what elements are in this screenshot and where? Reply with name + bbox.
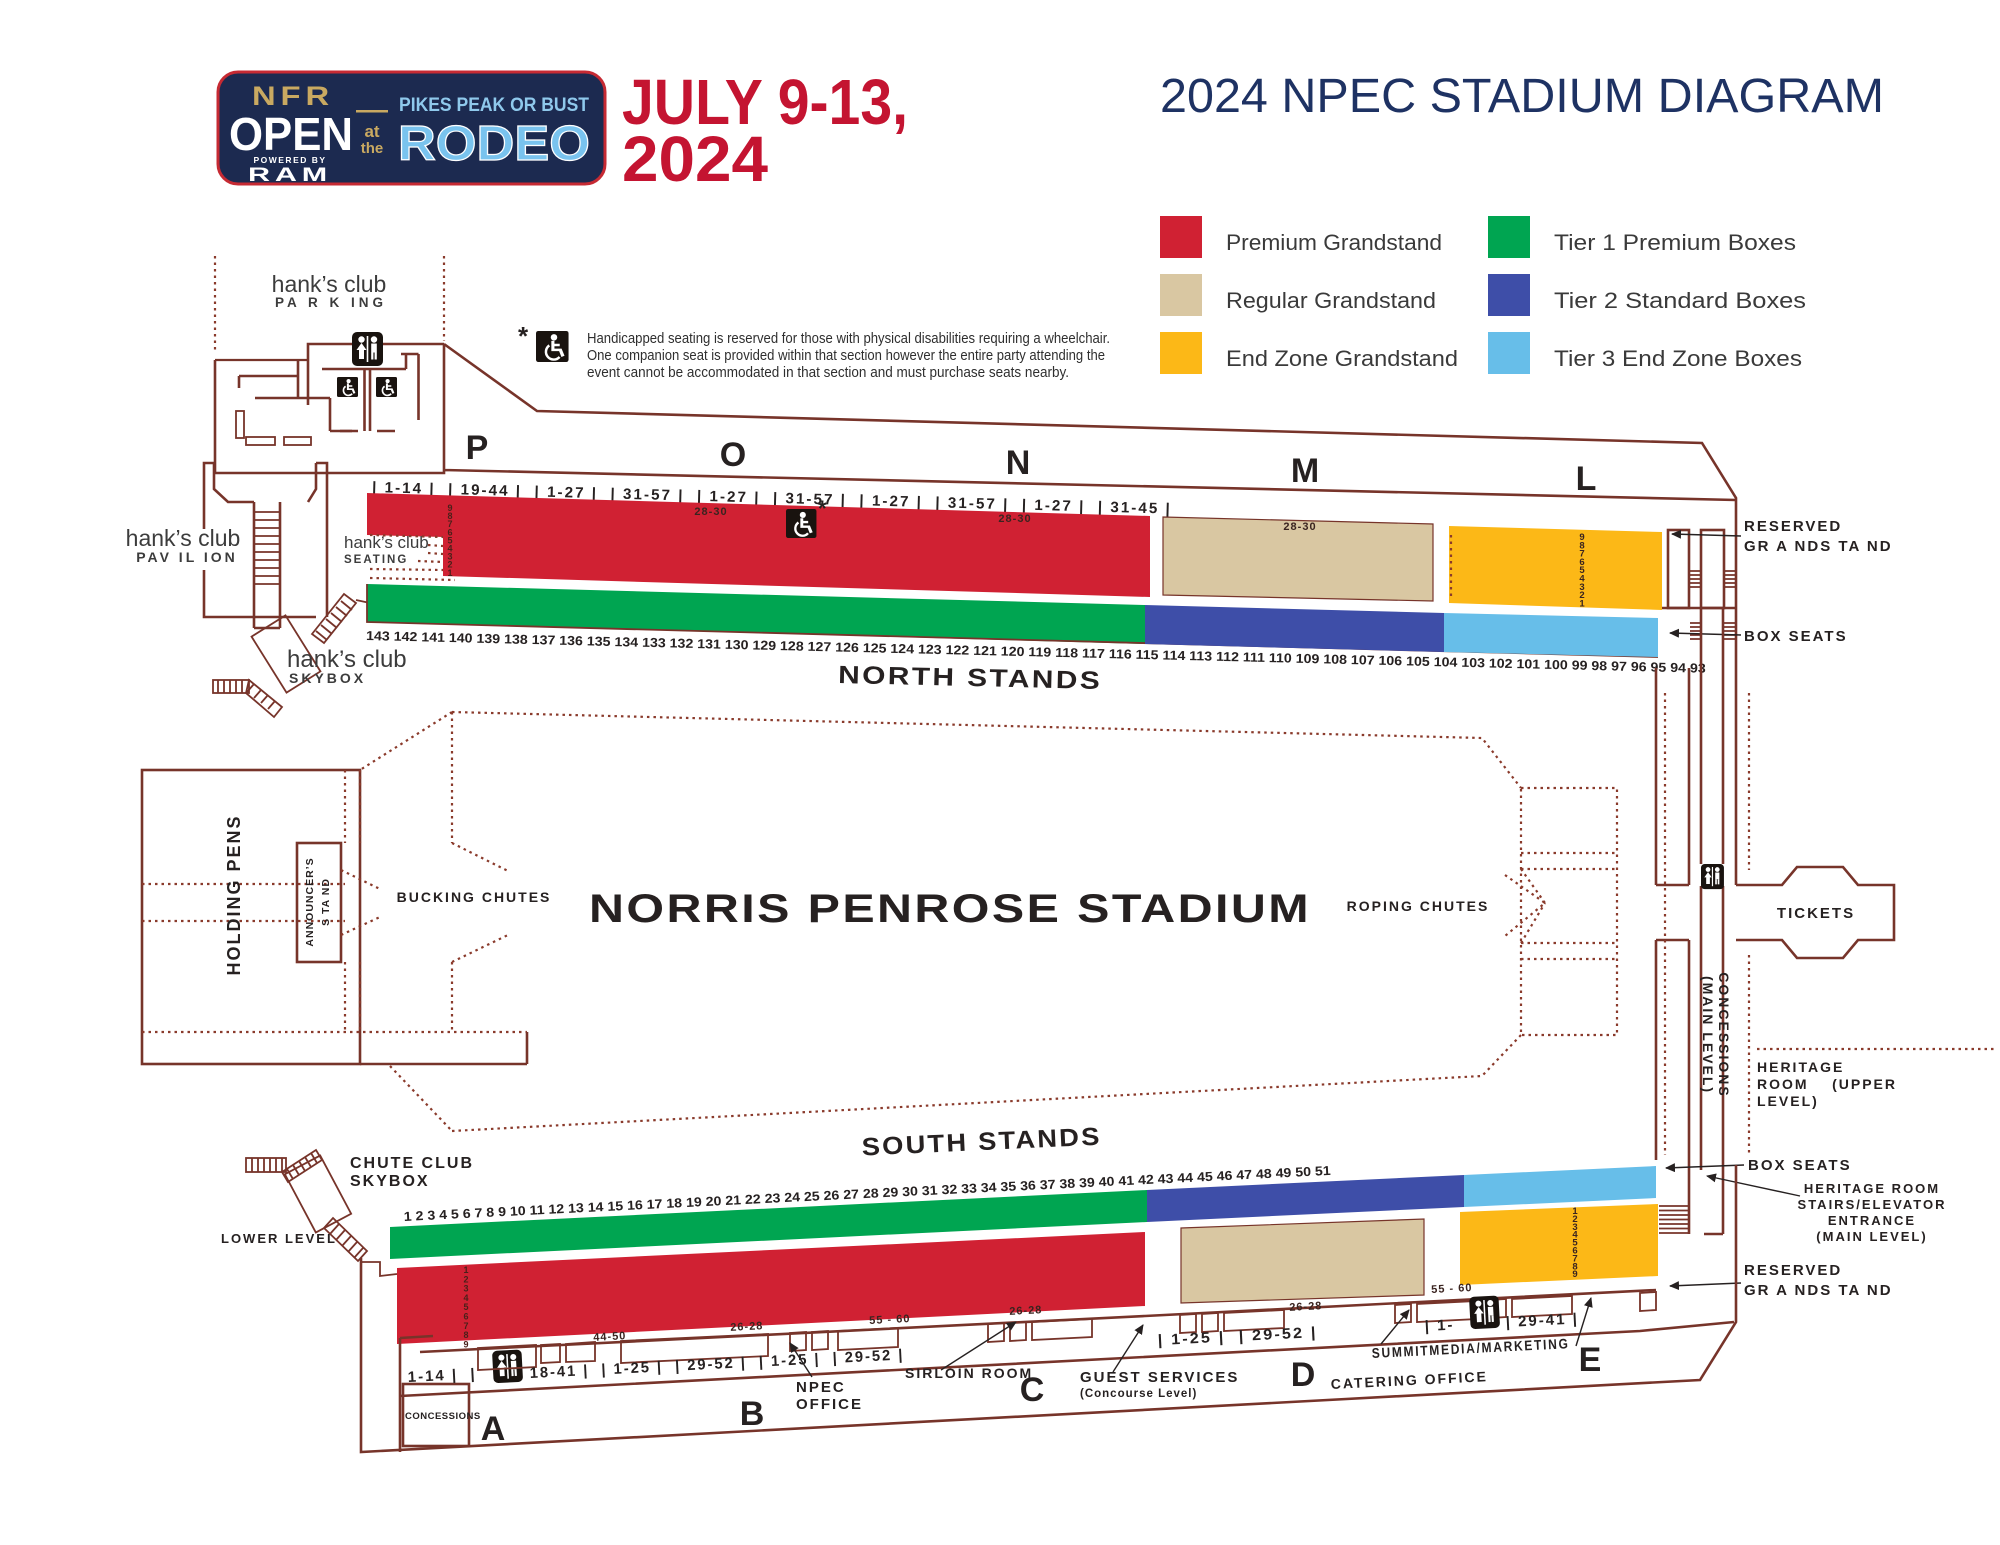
svg-text:O: O [720, 436, 748, 474]
svg-text:NORTH STANDS: NORTH STANDS [838, 661, 1103, 695]
svg-text:PA R K ING: PA R K ING [275, 295, 387, 310]
svg-text:ENTRANCE: ENTRANCE [1828, 1213, 1916, 1228]
svg-text:26-28: 26-28 [1009, 1304, 1043, 1318]
svg-text:ROOM (UPPER: ROOM (UPPER [1757, 1076, 1897, 1092]
svg-text:OFFICE: OFFICE [796, 1396, 863, 1413]
svg-text:CHUTE CLUB: CHUTE CLUB [350, 1155, 474, 1172]
svg-text:LOWER LEVEL: LOWER LEVEL [221, 1231, 337, 1246]
svg-text:BUCKING CHUTES: BUCKING CHUTES [397, 889, 552, 905]
svg-text:HERITAGE: HERITAGE [1757, 1059, 1844, 1075]
svg-text:*: * [518, 321, 529, 351]
svg-text:STAIRS/ELEVATOR: STAIRS/ELEVATOR [1798, 1197, 1947, 1212]
svg-text:NORRIS PENROSE STADIUM: NORRIS PENROSE STADIUM [589, 887, 1311, 931]
svg-text:| 1-: | 1- [1424, 1317, 1455, 1335]
svg-text:HOLDING PENS: HOLDING PENS [224, 814, 244, 975]
svg-text:LEVEL): LEVEL) [1757, 1093, 1819, 1109]
svg-text:GUEST SERVICES: GUEST SERVICES [1080, 1369, 1239, 1386]
svg-text:26-28: 26-28 [1289, 1300, 1323, 1314]
svg-text:Regular Grandstand: Regular Grandstand [1226, 288, 1436, 313]
svg-text:RODEO: RODEO [398, 117, 590, 171]
svg-text:M: M [1291, 452, 1321, 490]
svg-text:28-30: 28-30 [1283, 521, 1316, 533]
svg-text:44-50: 44-50 [593, 1330, 627, 1344]
svg-text:hank’s club: hank’s club [272, 271, 387, 297]
svg-text:S TA ND: S TA ND [320, 878, 332, 926]
svg-text:CONCESSIONS: CONCESSIONS [405, 1411, 481, 1422]
svg-text:Handicapped seating is reserve: Handicapped seating is reserved for thos… [587, 330, 1110, 347]
svg-text:hank’s club: hank’s club [287, 646, 407, 673]
svg-text:GR A NDS TA ND: GR A NDS TA ND [1744, 538, 1893, 555]
svg-text:L: L [1576, 460, 1599, 498]
svg-text:TICKETS: TICKETS [1777, 905, 1855, 922]
svg-text:Tier 2 Standard Boxes: Tier 2 Standard Boxes [1554, 288, 1806, 313]
svg-text:1-14 | |: 1-14 | | [407, 1366, 477, 1386]
svg-text:One companion seat is provided: One companion seat is provided within th… [587, 347, 1105, 364]
svg-text:SEATING: SEATING [344, 554, 408, 566]
svg-text:PAV IL ION: PAV IL ION [136, 549, 238, 565]
svg-text:SKYBOX: SKYBOX [289, 670, 366, 686]
svg-text:E: E [1579, 1341, 1604, 1379]
svg-text:RESERVED: RESERVED [1744, 1262, 1842, 1279]
svg-text:| 29-41 |: | 29-41 | [1505, 1310, 1579, 1331]
svg-text:SIRLOIN ROOM: SIRLOIN ROOM [905, 1365, 1033, 1381]
svg-text:55 - 60: 55 - 60 [869, 1313, 911, 1327]
svg-text:RAM: RAM [248, 165, 332, 186]
svg-text:B: B [740, 1395, 767, 1433]
svg-text:(Concourse Level): (Concourse Level) [1080, 1388, 1197, 1400]
svg-text:GR A NDS TA ND: GR A NDS TA ND [1744, 1282, 1893, 1299]
svg-text:2024: 2024 [622, 123, 768, 195]
svg-text:123456789: 123456789 [463, 1265, 468, 1349]
svg-text:at: at [364, 122, 379, 141]
svg-text:(MAIN LEVEL): (MAIN LEVEL) [1816, 1229, 1927, 1244]
svg-text:Premium Grandstand: Premium Grandstand [1226, 230, 1442, 255]
svg-text:RESERVED: RESERVED [1744, 518, 1842, 535]
svg-text:N: N [1006, 444, 1033, 482]
svg-text:987654321: 987654321 [1579, 532, 1585, 609]
svg-text:P: P [466, 429, 491, 467]
svg-text:A: A [481, 1410, 508, 1448]
svg-text:ROPING CHUTES: ROPING CHUTES [1347, 898, 1490, 914]
svg-text:NFR: NFR [252, 81, 334, 111]
svg-text:CONCESSIONS: CONCESSIONS [1716, 972, 1732, 1097]
svg-text:123456789: 123456789 [1572, 1206, 1578, 1280]
svg-text:the: the [361, 140, 384, 157]
svg-text:POWERED BY: POWERED BY [253, 155, 326, 165]
svg-text:End Zone Grandstand: End Zone Grandstand [1226, 346, 1458, 371]
svg-text:PIKES PEAK OR BUST: PIKES PEAK OR BUST [399, 95, 589, 116]
svg-text:BOX SEATS: BOX SEATS [1748, 1157, 1852, 1174]
svg-text:(MAIN LEVEL): (MAIN LEVEL) [1700, 976, 1716, 1094]
svg-text:26-28: 26-28 [730, 1320, 764, 1334]
svg-text:OPEN: OPEN [229, 108, 353, 160]
svg-text:2024 NPEC STADIUM DIAGRAM: 2024 NPEC STADIUM DIAGRAM [1160, 70, 1884, 123]
svg-text:BOX SEATS: BOX SEATS [1744, 628, 1848, 645]
svg-text:Tier 3 End Zone Boxes: Tier 3 End Zone Boxes [1554, 346, 1802, 371]
svg-text:event cannot be accommodated i: event cannot be accommodated in that sec… [587, 364, 1069, 381]
svg-text:SKYBOX: SKYBOX [350, 1173, 430, 1190]
svg-text:28-30: 28-30 [998, 513, 1031, 525]
svg-text:hank’s club: hank’s club [126, 525, 241, 551]
svg-text:ANNOUNCER’S: ANNOUNCER’S [304, 857, 316, 946]
svg-text:HERITAGE ROOM: HERITAGE ROOM [1804, 1181, 1940, 1196]
svg-text:Tier 1 Premium Boxes: Tier 1 Premium Boxes [1554, 230, 1796, 255]
svg-text:NPEC: NPEC [796, 1379, 846, 1396]
svg-text:D: D [1291, 1356, 1318, 1394]
svg-text:28-30: 28-30 [694, 506, 727, 518]
svg-text:55 - 60: 55 - 60 [1431, 1282, 1473, 1296]
svg-text:987654321: 987654321 [447, 503, 452, 578]
svg-text:*: * [818, 496, 827, 521]
